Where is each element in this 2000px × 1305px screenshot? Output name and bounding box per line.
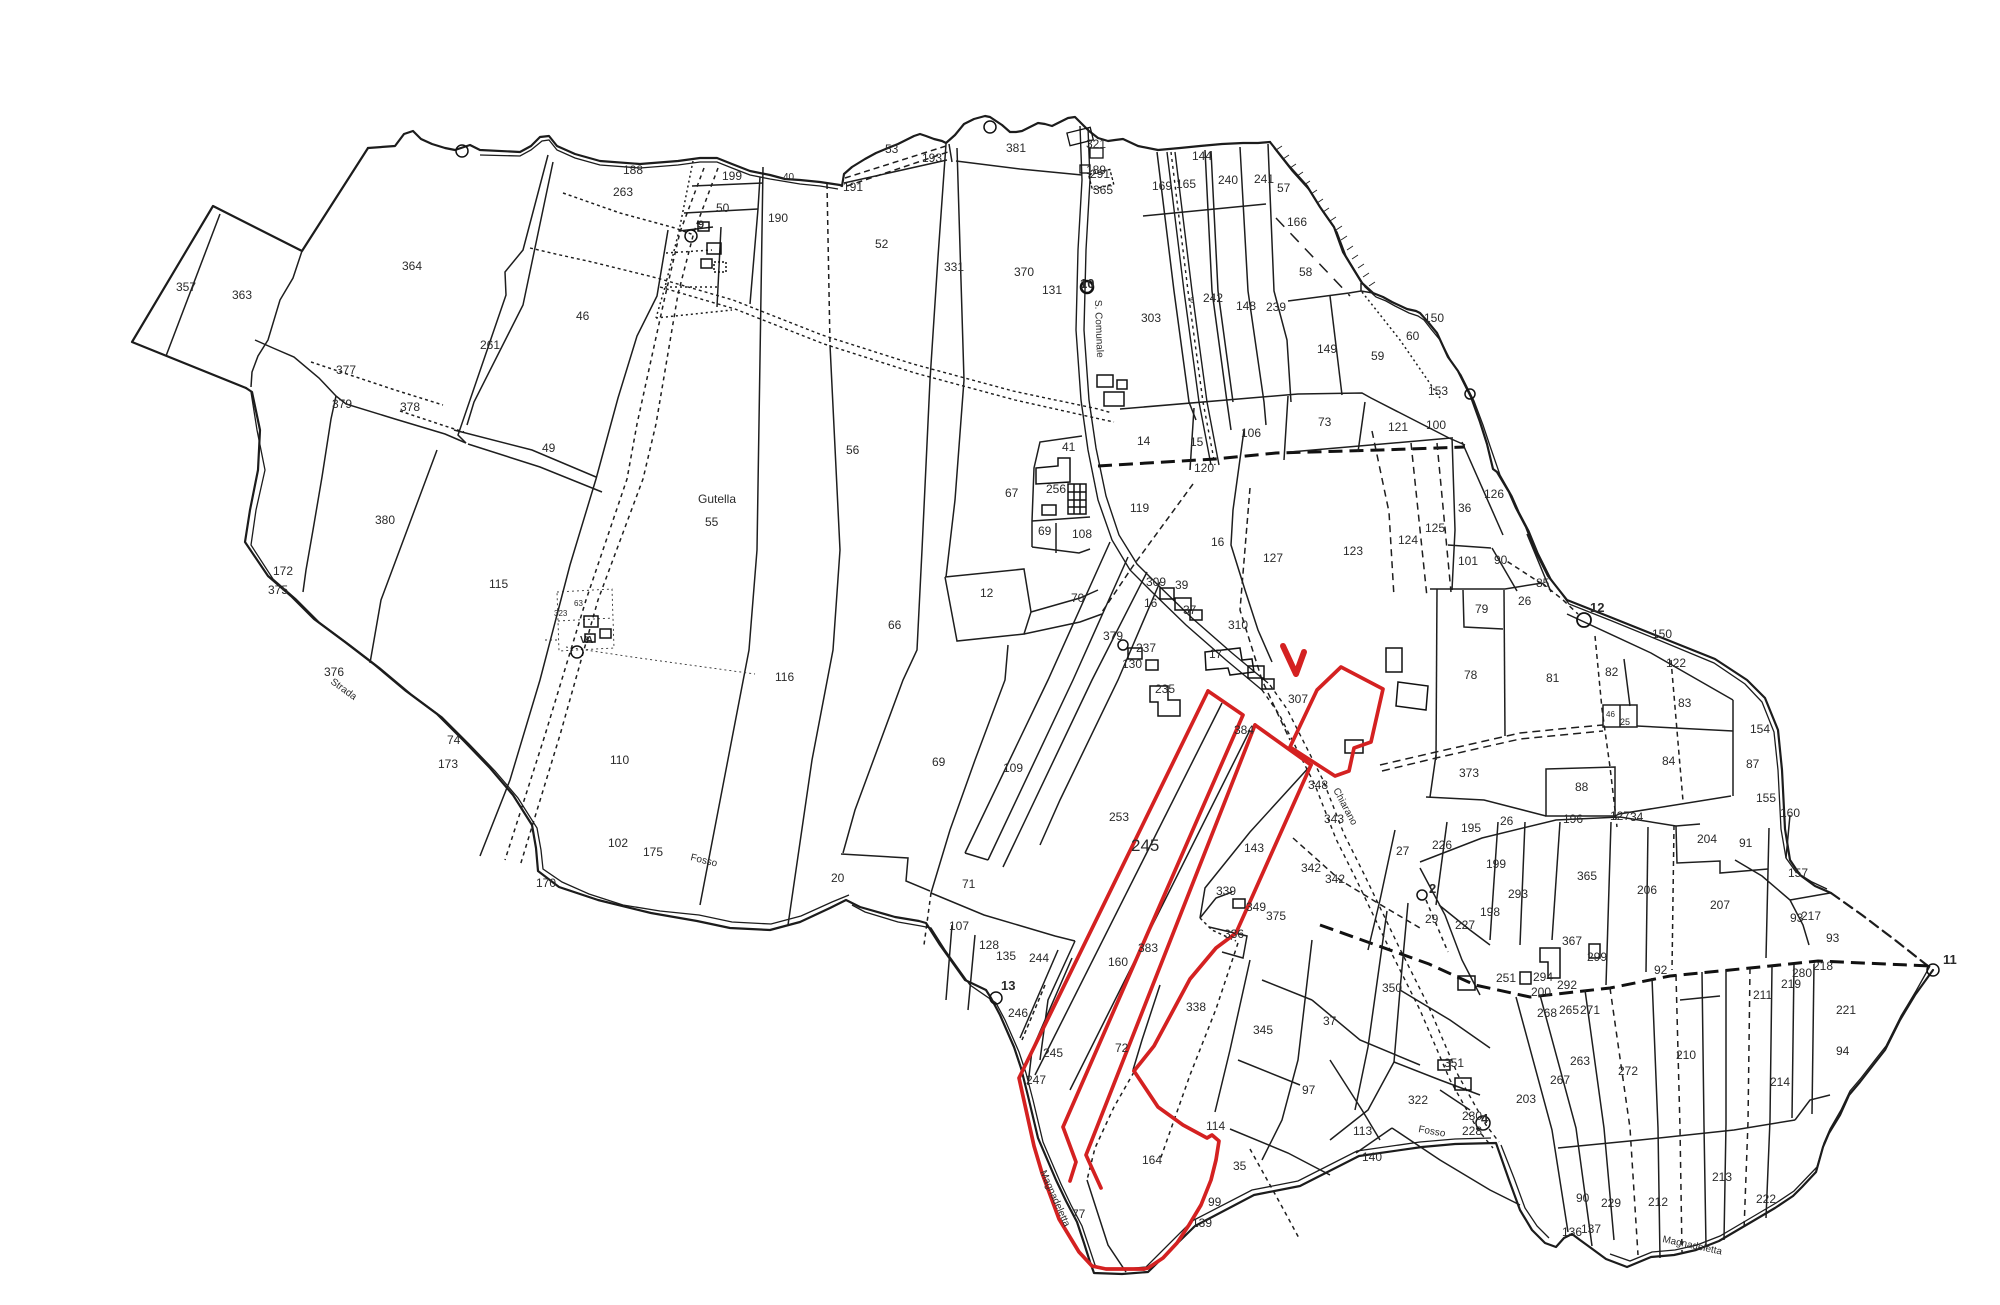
svg-text:10: 10	[1080, 276, 1094, 291]
svg-text:137: 137	[1581, 1222, 1601, 1236]
svg-text:247: 247	[1026, 1073, 1046, 1087]
svg-text:70: 70	[1071, 591, 1085, 605]
svg-text:268: 268	[1537, 1006, 1557, 1020]
svg-text:292: 292	[1557, 978, 1577, 992]
svg-text:91: 91	[1739, 836, 1753, 850]
svg-text:263: 263	[613, 185, 633, 199]
svg-text:365: 365	[1093, 183, 1113, 197]
svg-text:34: 34	[1630, 810, 1644, 824]
svg-text:82: 82	[1605, 665, 1619, 679]
svg-text:40: 40	[783, 172, 795, 183]
svg-text:107: 107	[949, 919, 969, 933]
svg-text:342: 342	[1325, 872, 1345, 886]
svg-text:36: 36	[1458, 501, 1472, 515]
svg-text:373: 373	[1459, 766, 1479, 780]
svg-text:240: 240	[1218, 173, 1238, 187]
svg-text:370: 370	[1014, 265, 1034, 279]
svg-text:85: 85	[1536, 576, 1550, 590]
svg-text:265: 265	[1559, 1003, 1579, 1017]
svg-text:242: 242	[1203, 291, 1223, 305]
svg-text:345: 345	[1253, 1023, 1273, 1037]
svg-text:143: 143	[1244, 841, 1264, 855]
svg-text:367: 367	[1562, 934, 1582, 948]
svg-text:157: 157	[1788, 866, 1808, 880]
svg-text:49: 49	[542, 441, 556, 455]
svg-text:41: 41	[1062, 440, 1076, 454]
svg-text:120: 120	[1194, 461, 1214, 475]
svg-text:227: 227	[1455, 918, 1475, 932]
svg-text:256: 256	[1046, 482, 1066, 496]
svg-text:114: 114	[1206, 1119, 1225, 1133]
svg-text:251: 251	[1496, 971, 1516, 985]
svg-text:6: 6	[1190, 296, 1195, 305]
svg-text:165: 165	[1176, 177, 1196, 191]
svg-text:35: 35	[1233, 1159, 1247, 1173]
svg-text:365: 365	[1577, 869, 1597, 883]
svg-text:46: 46	[1606, 710, 1615, 719]
svg-text:212: 212	[1648, 1195, 1668, 1209]
svg-text:338: 338	[1186, 1000, 1206, 1014]
svg-text:164: 164	[1142, 1153, 1162, 1167]
svg-text:39: 39	[1175, 578, 1189, 592]
svg-text:S. Comunale: S. Comunale	[1092, 300, 1105, 359]
svg-text:206: 206	[1637, 883, 1657, 897]
svg-text:97: 97	[1302, 1083, 1316, 1097]
svg-text:343: 343	[1324, 812, 1344, 826]
svg-text:59: 59	[1371, 349, 1385, 363]
svg-text:160: 160	[1780, 806, 1800, 820]
svg-text:20: 20	[831, 871, 845, 885]
svg-text:88: 88	[1575, 780, 1589, 794]
svg-text:280: 280	[1792, 966, 1812, 980]
svg-text:166: 166	[1287, 215, 1307, 229]
svg-text:Fosso: Fosso	[689, 852, 719, 869]
svg-text:12: 12	[980, 586, 994, 600]
svg-text:336: 336	[1224, 927, 1244, 941]
svg-text:55: 55	[705, 515, 719, 529]
svg-text:125: 125	[1425, 521, 1445, 535]
svg-text:135: 135	[996, 949, 1016, 963]
svg-text:79: 79	[1475, 602, 1489, 616]
svg-text:149: 149	[1317, 342, 1337, 356]
svg-text:384: 384	[1234, 723, 1254, 737]
svg-text:99: 99	[1208, 1195, 1222, 1209]
svg-text:37: 37	[1183, 603, 1197, 617]
svg-text:221: 221	[1836, 1003, 1856, 1017]
svg-text:119: 119	[1130, 501, 1149, 515]
svg-text:153: 153	[1428, 384, 1448, 398]
svg-text:217: 217	[1801, 909, 1821, 923]
svg-text:363: 363	[232, 288, 252, 302]
svg-text:46: 46	[576, 309, 590, 323]
svg-text:109: 109	[1003, 761, 1023, 775]
svg-text:140: 140	[1362, 1150, 1382, 1164]
svg-text:263: 263	[1570, 1054, 1590, 1068]
svg-text:66: 66	[888, 618, 902, 632]
svg-text:191: 191	[843, 180, 863, 194]
svg-text:101: 101	[1458, 554, 1478, 568]
svg-text:267: 267	[1550, 1073, 1570, 1087]
svg-text:15: 15	[1190, 435, 1204, 449]
svg-text:204: 204	[1697, 832, 1717, 846]
svg-text:195: 195	[1461, 821, 1481, 835]
svg-text:VA: VA	[580, 635, 593, 646]
svg-text:230: 230	[1462, 1109, 1482, 1123]
svg-text:83: 83	[1678, 696, 1692, 710]
svg-text:102: 102	[608, 836, 628, 850]
svg-text:56: 56	[846, 443, 860, 457]
svg-text:50: 50	[716, 201, 730, 215]
svg-text:169: 169	[1152, 179, 1172, 193]
svg-text:73: 73	[1318, 415, 1332, 429]
svg-text:92: 92	[1654, 963, 1668, 977]
svg-text:196: 196	[1563, 812, 1583, 826]
svg-text:229: 229	[1601, 1196, 1621, 1210]
svg-text:154: 154	[1750, 722, 1770, 736]
svg-text:207: 207	[1710, 898, 1730, 912]
svg-text:90: 90	[1494, 553, 1508, 567]
svg-text:364: 364	[402, 259, 422, 273]
svg-text:87: 87	[1746, 757, 1760, 771]
svg-text:115: 115	[489, 577, 508, 591]
svg-text:16: 16	[1144, 596, 1158, 610]
svg-text:331: 331	[944, 260, 964, 274]
svg-text:136: 136	[1562, 1225, 1582, 1239]
svg-text:349: 349	[1246, 900, 1266, 914]
svg-text:52: 52	[875, 237, 889, 251]
svg-text:342: 342	[1301, 861, 1321, 875]
svg-text:144: 144	[1192, 149, 1212, 163]
svg-text:211: 211	[1753, 988, 1772, 1002]
svg-text:106: 106	[1241, 426, 1261, 440]
svg-text:13: 13	[1001, 978, 1015, 993]
svg-text:113: 113	[1353, 1124, 1372, 1138]
svg-text:200: 200	[1531, 985, 1551, 999]
svg-text:123: 123	[1343, 544, 1363, 558]
svg-text:245: 245	[1131, 836, 1159, 855]
svg-text:226: 226	[1432, 838, 1452, 852]
svg-text:235: 235	[1155, 682, 1175, 696]
svg-text:139: 139	[1192, 1216, 1212, 1230]
svg-text:4: 4	[1481, 1111, 1489, 1126]
svg-text:58: 58	[1299, 265, 1313, 279]
svg-text:14: 14	[1137, 434, 1151, 448]
svg-text:78: 78	[1464, 668, 1478, 682]
svg-text:60: 60	[1406, 329, 1420, 343]
svg-text:188: 188	[623, 163, 643, 177]
svg-text:378: 378	[400, 400, 420, 414]
svg-text:53: 53	[885, 142, 899, 156]
svg-text:228: 228	[1462, 1124, 1482, 1138]
svg-text:127: 127	[1610, 809, 1630, 823]
svg-text:218: 218	[1813, 959, 1833, 973]
svg-text:29: 29	[1425, 912, 1439, 926]
svg-text:381: 381	[1006, 141, 1026, 155]
svg-text:84: 84	[1662, 754, 1676, 768]
svg-text:116: 116	[775, 670, 794, 684]
svg-text:94: 94	[1836, 1044, 1850, 1058]
svg-text:25: 25	[1620, 717, 1630, 727]
svg-text:309: 309	[1146, 575, 1166, 589]
svg-text:155: 155	[1756, 791, 1776, 805]
svg-text:272: 272	[1618, 1064, 1638, 1078]
svg-text:239: 239	[1266, 300, 1286, 314]
svg-text:90: 90	[1576, 1191, 1590, 1205]
svg-text:26: 26	[1500, 814, 1514, 828]
svg-text:2: 2	[1429, 881, 1436, 896]
svg-text:12: 12	[1590, 600, 1604, 615]
svg-text:379: 379	[332, 397, 352, 411]
svg-text:74: 74	[447, 733, 461, 747]
svg-text:100: 100	[1426, 418, 1446, 432]
svg-text:77: 77	[1072, 1207, 1086, 1221]
svg-text:375: 375	[268, 583, 288, 597]
svg-text:357: 357	[176, 280, 196, 294]
svg-text:379: 379	[1103, 629, 1123, 643]
svg-text:108: 108	[1072, 527, 1092, 541]
svg-text:26: 26	[1518, 594, 1532, 608]
svg-text:170: 170	[536, 876, 556, 890]
svg-text:121: 121	[1388, 420, 1408, 434]
svg-text:199: 199	[1486, 857, 1506, 871]
svg-text:310: 310	[1228, 618, 1248, 632]
svg-text:245: 245	[1043, 1046, 1063, 1060]
svg-text:110: 110	[610, 753, 629, 767]
svg-text:126: 126	[1484, 487, 1504, 501]
svg-text:307: 307	[1288, 692, 1308, 706]
svg-text:348: 348	[1308, 778, 1328, 792]
svg-text:350: 350	[1382, 981, 1402, 995]
svg-text:375: 375	[1266, 909, 1286, 923]
svg-text:339: 339	[1216, 884, 1236, 898]
svg-text:291: 291	[1090, 167, 1110, 181]
svg-text:321: 321	[1086, 137, 1106, 151]
svg-text:203: 203	[1516, 1092, 1536, 1106]
svg-text:172: 172	[273, 564, 293, 578]
svg-text:299: 299	[1587, 950, 1607, 964]
svg-text:Gutella: Gutella	[698, 492, 736, 506]
svg-text:198: 198	[1480, 905, 1500, 919]
svg-text:17: 17	[1209, 647, 1223, 661]
svg-text:271: 271	[1580, 1003, 1600, 1017]
svg-text:150: 150	[1652, 627, 1672, 641]
svg-text:213: 213	[1712, 1170, 1732, 1184]
svg-text:27: 27	[1396, 844, 1410, 858]
svg-text:244: 244	[1029, 951, 1049, 965]
svg-text:377: 377	[336, 363, 356, 377]
svg-text:380: 380	[375, 513, 395, 527]
svg-text:293: 293	[1508, 887, 1528, 901]
svg-text:69: 69	[1038, 524, 1052, 538]
svg-text:322: 322	[1408, 1093, 1428, 1107]
svg-text:246: 246	[1008, 1006, 1028, 1020]
svg-text:Fosso: Fosso	[1417, 1124, 1446, 1140]
svg-text:9: 9	[698, 219, 704, 231]
svg-text:148: 148	[1236, 299, 1256, 313]
svg-text:175: 175	[643, 845, 663, 859]
svg-text:173: 173	[438, 757, 458, 771]
svg-text:130: 130	[1122, 657, 1142, 671]
svg-text:93: 93	[1826, 931, 1840, 945]
svg-text:237: 237	[1136, 641, 1156, 655]
svg-text:383: 383	[1138, 941, 1158, 955]
svg-text:81: 81	[1546, 671, 1560, 685]
svg-text:303: 303	[1141, 311, 1161, 325]
svg-text:193: 193	[922, 151, 942, 165]
svg-text:214: 214	[1770, 1075, 1790, 1089]
svg-text:11: 11	[1943, 952, 1957, 967]
svg-text:160: 160	[1108, 955, 1128, 969]
svg-text:323: 323	[554, 609, 568, 618]
svg-text:127: 127	[1263, 551, 1283, 565]
svg-text:57: 57	[1277, 181, 1291, 195]
svg-text:351: 351	[1444, 1056, 1464, 1070]
svg-text:222: 222	[1756, 1192, 1776, 1206]
svg-text:253: 253	[1109, 810, 1129, 824]
svg-text:199: 199	[722, 169, 742, 183]
svg-text:294: 294	[1533, 970, 1553, 984]
svg-text:124: 124	[1398, 533, 1418, 547]
svg-text:261: 261	[480, 338, 500, 352]
svg-text:69: 69	[932, 755, 946, 769]
svg-text:210: 210	[1676, 1048, 1696, 1062]
svg-text:131: 131	[1042, 283, 1062, 297]
svg-text:190: 190	[768, 211, 788, 225]
svg-text:150: 150	[1424, 311, 1444, 325]
svg-text:71: 71	[962, 877, 976, 891]
svg-text:72: 72	[1115, 1041, 1129, 1055]
svg-text:63: 63	[574, 599, 583, 608]
svg-text:67: 67	[1005, 486, 1019, 500]
svg-text:16: 16	[1211, 535, 1225, 549]
svg-text:93: 93	[1790, 911, 1804, 925]
svg-text:241: 241	[1254, 172, 1274, 186]
svg-text:37: 37	[1323, 1014, 1337, 1028]
svg-text:122: 122	[1666, 656, 1686, 670]
svg-text:Strada: Strada	[328, 677, 359, 703]
